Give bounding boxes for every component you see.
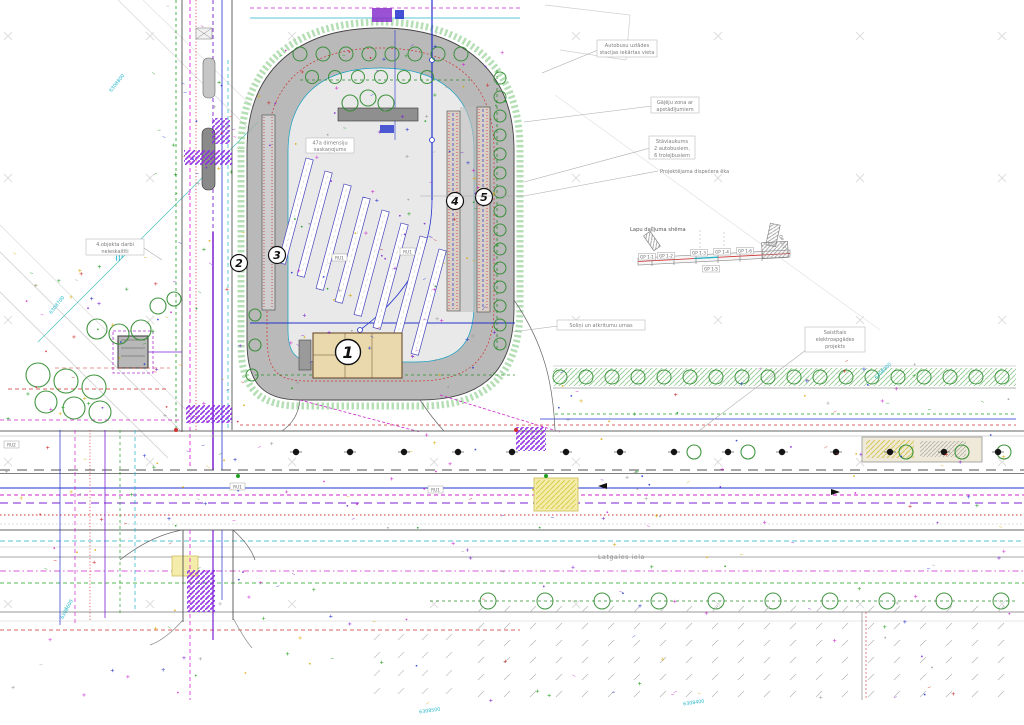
sheet-label: GP 1-1 (640, 255, 654, 260)
crosswalk (187, 570, 215, 612)
site-plan-sheet: 1 2 3 4 5 Autobusu uzlādes stacijas iekā… (0, 0, 1024, 725)
coord-label: 6308800 (108, 73, 126, 94)
callout-text: Stāvlaukums (656, 139, 689, 145)
callout-text: Soliņi un atkritumu urnas (569, 323, 633, 329)
lane-arrow (831, 489, 840, 495)
stop-number: 5 (480, 191, 488, 204)
callout-text: 47a dimensiju (312, 141, 347, 147)
callout-text: Saistītais (824, 330, 847, 336)
callout-text: stacijas iekārtas vieta (600, 50, 655, 56)
callout-charging-station: Autobusu uzlādes stacijas iekārtas vieta (542, 40, 657, 73)
coord-label: 6308700 (48, 295, 66, 316)
callout-pedestrian-zone: Gājēju zona ar apstādījumiem (524, 97, 699, 122)
callout-text: neieskaitīti (101, 249, 128, 255)
crosswalk (212, 118, 230, 144)
sheet-label: GP 1-2 (659, 254, 673, 259)
callout-text: 6 trolejbusiem (654, 153, 690, 159)
sheet-label: GP 1-6 (738, 249, 752, 254)
callout-text: 2 autobusiem, (654, 146, 690, 152)
charging-equipment (372, 8, 392, 22)
callout-text: Gājēju zona ar (657, 100, 694, 106)
callout-bus-parking: Stāvlaukums 2 autobusiem, 6 trolejbusiem (524, 136, 695, 182)
stop-number: 4 (450, 195, 459, 208)
ref-label: RU1 (403, 250, 412, 255)
callout-47a-note: 47a dimensiju saskaņojums (306, 138, 354, 153)
traffic-signals (174, 428, 548, 478)
ref-label: RU1 (233, 485, 242, 490)
crosswalk (184, 150, 232, 165)
street-name-label: Latgales iela (598, 554, 645, 561)
callout-text: apstādījumiem (656, 107, 693, 113)
sheet-label: GP 1-4 (715, 250, 729, 255)
stop-marker-3: 3 (269, 247, 286, 264)
stop-number: 3 (273, 249, 281, 262)
stop-marker-2: 2 (231, 255, 248, 272)
stop-marker-4: 4 (447, 193, 464, 210)
callout-text: elektroapgādes (816, 337, 855, 343)
ref-label: RU2 (7, 443, 16, 448)
coord-label: 6308400 (683, 699, 705, 708)
callout-text: projekts (825, 344, 846, 350)
coord-label: 6308600 (59, 599, 74, 621)
site-plan-canvas: 1 2 3 4 5 Autobusu uzlādes stacijas iekā… (0, 0, 1024, 725)
stop-number: 2 (235, 257, 243, 270)
callout-text: Projektējama dispečera ēka (660, 168, 729, 175)
crosswalk (186, 405, 232, 423)
coord-label: 6308500 (419, 707, 441, 716)
sheet-label: GP 1-5 (704, 267, 718, 272)
stop-marker-5: 5 (476, 189, 493, 206)
callout-text: 4.objekta darbi (96, 242, 134, 248)
crosswalk (516, 427, 546, 451)
survey-tick-field (374, 606, 1004, 697)
stop-marker-1: 1 (336, 340, 361, 365)
ref-label: RU1 (431, 488, 440, 493)
shelter-canopy (338, 108, 418, 121)
stop-number: 1 (342, 343, 353, 362)
callout-text: Autobusu uzlādes (605, 43, 650, 49)
callout-text: saskaņojums (314, 147, 347, 153)
sheet-division-scheme: Lapu dalījuma shēma GP 1-1 GP 1-2 GP 1-3… (630, 223, 790, 272)
north-road (176, 0, 232, 470)
sheet-label: GP 1-3 (692, 251, 706, 256)
callout-object4-note: 4.objekta darbi neieskaitīti (86, 239, 162, 260)
ref-label: RU1 (335, 256, 344, 261)
scheme-title: Lapu dalījuma shēma (630, 227, 686, 233)
